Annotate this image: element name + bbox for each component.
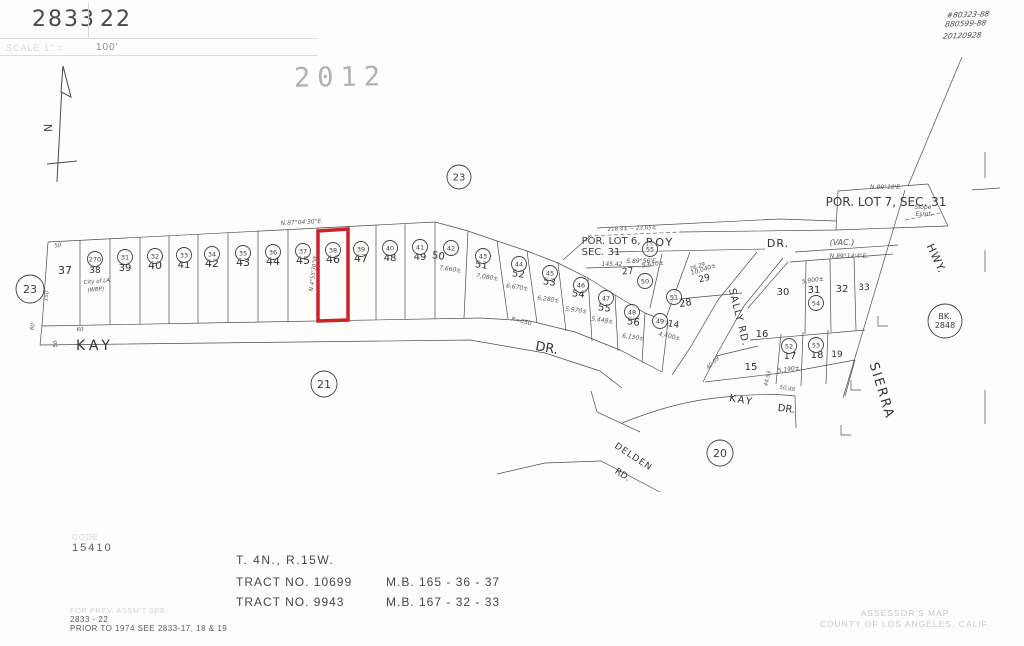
map-annotation: R=650 — [510, 316, 532, 328]
svg-text:51: 51 — [670, 293, 678, 301]
sally-rd-lines — [672, 252, 783, 382]
reference-circle: BK.2848 — [928, 304, 962, 338]
svg-text:44: 44 — [515, 260, 523, 268]
parcel-circle: 34 — [205, 247, 220, 262]
map-annotation: 50 — [53, 340, 59, 347]
parcel-circle: 38 — [326, 243, 341, 258]
map-annotation: 50 — [54, 242, 62, 249]
svg-text:42: 42 — [447, 244, 455, 252]
prev-assessment-block: FOR PREV. ASSM'T SEE 2833 - 22 PRIOR TO … — [70, 606, 227, 633]
parcel-circle: 32 — [148, 249, 163, 264]
parcel-circle: 47 — [599, 291, 614, 306]
lot-number: 27 — [622, 267, 634, 278]
map-annotation: (VAC.) — [830, 238, 855, 247]
street-name-label: DR. — [777, 403, 796, 416]
svg-text:48: 48 — [628, 308, 636, 316]
credit-line: COUNTY OF LOS ANGELES, CALIF. — [790, 619, 1020, 630]
svg-text:23: 23 — [23, 283, 37, 296]
lot-number: 19 — [831, 350, 843, 360]
tract-name: TRACT NO. 10699 — [236, 575, 386, 589]
svg-text:50: 50 — [641, 277, 649, 285]
street-name-label: SIERRA — [866, 361, 898, 422]
map-annotation: 5,448± — [591, 316, 614, 326]
tract-mapbook: M.B. 165 - 36 - 37 — [386, 575, 500, 589]
lot-number: 30 — [777, 287, 790, 298]
map-annotation: 218.4± ~ 23.65± — [607, 225, 656, 233]
map-annotation: 7,660± — [439, 265, 462, 275]
street-name-label: DR. — [767, 237, 789, 250]
credit-line: ASSESSOR'S MAP — [790, 608, 1020, 619]
map-annotation: 5,970± — [565, 306, 588, 316]
map-annotation: N.89°10'E. — [870, 184, 902, 191]
map-annotation: N.89°14'4"E. — [830, 253, 869, 260]
svg-text:N: N — [42, 124, 55, 132]
map-annotation: 5,190± — [777, 365, 800, 375]
svg-text:39: 39 — [357, 245, 365, 253]
reference-circle: 20 — [707, 440, 733, 466]
parcel-circle: 36 — [266, 245, 281, 260]
map-annotation: 50.49 — [779, 385, 796, 394]
map-annotation: 60 — [77, 327, 84, 333]
parcel-circle: 45 — [543, 266, 558, 281]
dashed-linework — [588, 213, 940, 236]
lot-number-labels: 3738394041424344454647484950515253545556… — [58, 250, 870, 373]
map-annotation: 6,150± — [622, 333, 645, 343]
svg-text:31: 31 — [121, 253, 129, 261]
street-name-label: DR. — [534, 339, 559, 358]
lot-number: 29 — [698, 273, 712, 286]
svg-text:52: 52 — [785, 342, 793, 350]
svg-text:33: 33 — [180, 251, 188, 259]
lot-number: 31 — [808, 285, 821, 296]
north-arrow-icon: N — [42, 66, 77, 182]
lot-number: 32 — [836, 284, 849, 295]
map-annotation: 40.09 — [706, 355, 722, 371]
lot-number: 38 — [89, 266, 101, 276]
svg-text:53: 53 — [812, 341, 820, 349]
map-annotation: Slope — [915, 204, 932, 211]
reference-circle: 21 — [311, 371, 337, 397]
map-annotation: 145.42 — [602, 261, 623, 268]
svg-text:47: 47 — [602, 294, 610, 302]
parcel-circle: 40 — [383, 241, 398, 256]
map-annotation: 7,080± — [476, 273, 499, 283]
svg-text:38: 38 — [329, 246, 337, 254]
svg-text:41: 41 — [416, 243, 424, 251]
street-name-label: SALLY RD. — [726, 287, 751, 347]
code-value: 15410 — [72, 542, 113, 554]
svg-text:20: 20 — [713, 447, 727, 460]
township-range: T. 4N., R.15W. — [236, 553, 516, 567]
map-annotation: City of LA — [83, 278, 110, 286]
parcel-circle: 50 — [638, 274, 653, 289]
parcel-circle: 42 — [444, 241, 459, 256]
reference-circle: 23 — [447, 165, 471, 189]
parcel-circle: 55 — [643, 242, 658, 257]
lot-number: 14 — [667, 319, 680, 331]
map-annotation: 6,670± — [506, 283, 529, 293]
svg-text:43: 43 — [479, 252, 487, 260]
tract-row: TRACT NO. 10699 M.B. 165 - 36 - 37 — [236, 575, 516, 589]
lot-number: 33 — [858, 283, 869, 293]
parcel-circle: 44 — [512, 257, 527, 272]
svg-text:34: 34 — [208, 250, 216, 258]
svg-text:55: 55 — [646, 245, 654, 253]
svg-text:40: 40 — [386, 244, 394, 252]
parcel-circle: 35 — [236, 246, 251, 261]
parcel-circle: 31 — [118, 250, 133, 265]
lot-number: 16 — [756, 329, 769, 340]
svg-text:21: 21 — [317, 378, 331, 391]
map-annotation: 60 — [29, 322, 36, 331]
parcel-circle: 51 — [667, 290, 682, 305]
map-annotation: 44.53 — [763, 370, 773, 387]
reference-circle: 23 — [16, 275, 44, 303]
lot-number: 15 — [745, 362, 758, 373]
svg-text:45: 45 — [546, 269, 554, 277]
svg-text:36: 36 — [269, 248, 277, 256]
parcel-circle: 41 — [413, 240, 428, 255]
lot-number: 37 — [58, 264, 72, 277]
street-name-label: RD. — [613, 467, 632, 484]
parcel-circle: 49 — [653, 314, 668, 329]
svg-text:54: 54 — [812, 299, 820, 307]
parcel-circle: 46 — [574, 278, 589, 293]
map-annotation: POR. LOT 6, — [582, 236, 641, 247]
parcel-circle: 43 — [476, 249, 491, 264]
parcel-map-drawing: N KAYDR.ROYDR.SALLY RD.SIERRAHWY.KAYDR.D… — [0, 0, 1024, 646]
reference-circles: 23232120BK.2848 — [16, 165, 962, 466]
svg-text:32: 32 — [151, 252, 159, 260]
svg-text:23: 23 — [453, 173, 466, 184]
svg-text:46: 46 — [577, 281, 585, 289]
assessor-map-sheet: 2833 22 SCALE 1" = 100' 2012 #80323-88 8… — [0, 0, 1024, 646]
parcel-circle: 37 — [296, 244, 311, 259]
prev-assmt-ref: 2833 - 22 — [70, 615, 227, 624]
map-annotation: 6,280± — [537, 295, 560, 305]
parcel-circle: 48 — [625, 305, 640, 320]
tract-block: T. 4N., R.15W. TRACT NO. 10699 M.B. 165 … — [236, 553, 516, 609]
street-name-label: HWY. — [924, 242, 949, 276]
map-annotation: 150 — [43, 290, 50, 302]
prev-assmt-faded: FOR PREV. ASSM'T SEE — [70, 606, 227, 615]
street-name-label: KAY — [76, 338, 114, 354]
svg-text:37: 37 — [299, 247, 307, 255]
code-label: CODE — [72, 533, 113, 542]
prev-assmt-note: PRIOR TO 1974 SEE 2833-17, 18 & 19 — [70, 624, 227, 633]
map-annotation: Esmt. — [915, 211, 932, 218]
map-annotation: (WBP) — [87, 286, 104, 293]
tract-row: TRACT NO. 9943 M.B. 167 - 32 - 33 — [236, 595, 516, 609]
parcel-circle: 52 — [782, 339, 797, 354]
tract-name: TRACT NO. 9943 — [236, 595, 386, 609]
tract-mapbook: M.B. 167 - 32 - 33 — [386, 595, 500, 609]
map-annotation: SEC. 31 — [582, 247, 621, 258]
svg-text:35: 35 — [239, 249, 247, 257]
lot-number: 50 — [431, 250, 445, 263]
parcel-circle: 39 — [354, 242, 369, 257]
svg-text:49: 49 — [656, 317, 664, 325]
map-annotation: 4,400± — [658, 331, 681, 342]
parcel-circle: 53 — [809, 338, 824, 353]
parcel-circle: 54 — [809, 296, 824, 311]
parcel-circle: 270 — [88, 252, 103, 267]
svg-text:270: 270 — [89, 255, 101, 263]
map-annotation: N.87°04'30"E. — [281, 218, 324, 227]
code-block: CODE 15410 — [72, 533, 113, 554]
parcel-circle: 33 — [177, 248, 192, 263]
kay-dr-lines — [40, 318, 796, 492]
assessor-credit: ASSESSOR'S MAP COUNTY OF LOS ANGELES, CA… — [790, 608, 1020, 630]
